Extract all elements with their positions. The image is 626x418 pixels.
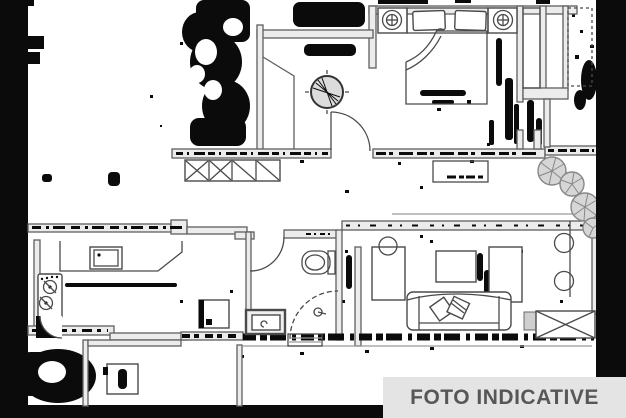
pillow-left [413,10,446,30]
floor-plan-scan: FOTO INDICATIVE [0,0,626,418]
bathroom [246,237,338,346]
coffee-table [436,251,476,282]
round-hall-table [305,70,349,114]
scan-edge-bars [0,0,626,418]
sofa [407,292,511,330]
toilet [302,251,335,274]
washing-machine [103,364,138,394]
plant-icon [560,172,584,196]
closet-x-boxes [185,160,280,181]
floor-plan-drawing [0,0,626,418]
entry-door-arc [331,112,370,151]
corner-unit [36,316,62,338]
fridge [199,300,229,328]
wardrobe [523,8,540,88]
bathroom-door-arc [250,237,284,271]
service-balcony [103,364,138,394]
watermark-box: FOTO INDICATIVE [383,377,626,418]
shower-corner [290,291,338,339]
right-edge-bar [596,0,626,377]
hall-console [433,161,488,182]
plant-icon [571,193,599,221]
wash-basin [246,310,285,334]
kitchen [36,241,229,338]
window-x-box [536,311,595,338]
entry-hall [305,70,370,151]
pillar-stub [524,312,536,330]
kitchen-sink [90,247,122,269]
living-room [372,221,595,338]
stool-circle [555,272,574,291]
stool-circle [555,234,574,253]
cooktop-2-burners [38,274,62,318]
watermark-label: FOTO INDICATIVE [410,386,599,410]
pillow-right [455,10,487,30]
